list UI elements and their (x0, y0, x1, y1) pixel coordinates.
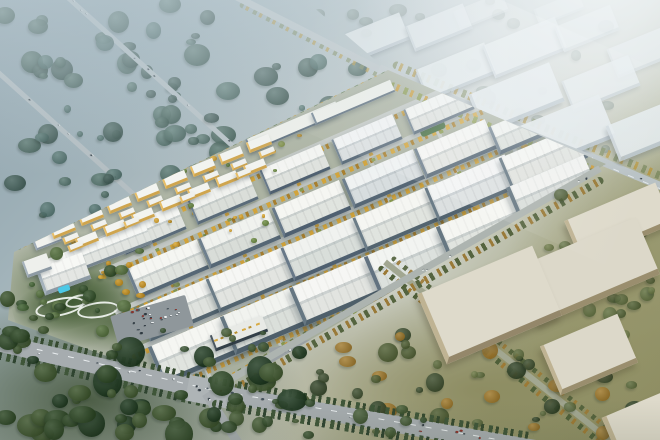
swimming-pool (57, 284, 70, 294)
vehicles (205, 393, 245, 440)
tree-clump (401, 340, 410, 348)
tree-clump (199, 408, 220, 429)
warehouse-building (126, 239, 209, 299)
apartment-building (202, 170, 219, 182)
bottom-shade (0, 400, 660, 440)
distant-warehouses (0, 0, 660, 440)
tree-clump (303, 431, 314, 439)
tree-clump (160, 165, 181, 183)
tree-clump (79, 285, 88, 294)
vehicle-dot (326, 352, 329, 354)
street-trees (151, 209, 575, 397)
tree-clump (316, 369, 324, 375)
tree-clump (208, 166, 215, 173)
tree-clump (168, 95, 178, 103)
tree-clump (16, 300, 27, 307)
tree-clump (69, 406, 96, 423)
lawn (0, 233, 145, 348)
tree-clump (160, 328, 167, 333)
apartment-building (179, 191, 196, 203)
tree-clump (438, 138, 445, 143)
tree-clump (564, 337, 581, 352)
apartment-building (106, 195, 132, 214)
tree-clump (431, 63, 447, 78)
street-trees (116, 115, 577, 319)
tree-clump (415, 13, 426, 20)
side-road (202, 391, 249, 440)
large-warehouse (516, 217, 660, 325)
tree-clump (593, 171, 599, 176)
tree-clump (353, 114, 363, 124)
tree-clump (117, 300, 131, 312)
vehicle-dot (311, 356, 314, 358)
tree-clump (530, 208, 536, 212)
tree-clump (52, 301, 63, 312)
tree-clump (40, 202, 55, 217)
tree-clump (39, 73, 48, 79)
tree-clump (21, 51, 44, 73)
tree-clump (168, 220, 172, 223)
tree-clump (377, 403, 397, 420)
vehicle-dot (128, 371, 131, 373)
vehicle-dot (317, 358, 319, 359)
tree-clump (319, 205, 324, 209)
tree-clump (396, 405, 409, 414)
distant-warehouse (405, 3, 473, 51)
tree-clump (571, 50, 581, 60)
vehicle-dot (220, 390, 223, 392)
tree-clump (10, 329, 30, 343)
tree-clump (516, 336, 520, 339)
tree-clump (44, 410, 70, 429)
tree-clump (484, 390, 500, 403)
tree-clump (401, 346, 417, 360)
tree-clump (389, 4, 407, 17)
tree-clump (191, 33, 200, 39)
tree-clump (266, 87, 289, 105)
tree-clump (308, 166, 325, 183)
distant-warehouse (533, 0, 584, 26)
sports-field (418, 116, 447, 137)
apartment-building (78, 207, 104, 226)
apartment-building (174, 182, 191, 194)
vehicle-dot (137, 329, 140, 331)
tree-clump (174, 390, 188, 400)
tree-clump (262, 220, 269, 226)
tree-clump (521, 144, 528, 149)
tree-clump (173, 282, 180, 287)
tree-clump (184, 44, 210, 66)
street (364, 149, 447, 332)
tree-clump (0, 291, 15, 306)
tree-clump (212, 158, 220, 165)
tree-clump (169, 417, 185, 429)
tree-clump (72, 396, 81, 404)
vehicle-dot (81, 9, 83, 11)
vehicles (389, 72, 660, 190)
tree-clump (601, 101, 615, 109)
vehicle-dot (142, 315, 145, 317)
tree-clump (471, 371, 478, 378)
tree-clump (395, 332, 405, 341)
tree-clump (307, 403, 317, 413)
tree-clump (31, 409, 51, 426)
tree-clump (627, 301, 642, 311)
apartment-building (162, 170, 188, 189)
vehicle-dot (153, 75, 155, 77)
far-forest (0, 0, 660, 440)
tree-clump (352, 388, 363, 400)
intersection (185, 375, 235, 409)
tree-clump (228, 393, 243, 405)
tree-clump (38, 326, 49, 334)
street-trees (101, 79, 552, 279)
tree-clump (165, 196, 177, 204)
tree-clump (120, 399, 137, 416)
tree-clump (513, 108, 525, 116)
tree-clump (372, 429, 380, 435)
apartment-building (146, 195, 163, 207)
tree-clump (103, 122, 124, 142)
tree-clump (615, 294, 628, 304)
apartment-building (134, 183, 160, 202)
tree-clump (616, 309, 626, 318)
apartment-building (190, 158, 216, 177)
vehicle-dot (25, 343, 28, 345)
tree-clump (347, 9, 360, 20)
tree-clump (122, 51, 140, 68)
tree-clump (165, 420, 194, 440)
tree-clump (159, 0, 181, 13)
tree-clump (131, 399, 150, 412)
vehicle-dot (422, 269, 425, 271)
tree-clump (583, 303, 596, 316)
vehicle-dot (12, 342, 15, 344)
vehicle-dot (170, 315, 173, 317)
tree-clump (101, 271, 106, 274)
warehouse-building (148, 310, 252, 385)
hotel-lawn (7, 261, 136, 342)
tree-clump (492, 103, 496, 106)
tree-clump (401, 90, 408, 96)
tree-clump (260, 331, 265, 335)
apartment-building (243, 158, 267, 176)
tree-clump (107, 267, 113, 273)
tree-clump (273, 169, 277, 172)
tree-clump (319, 96, 340, 114)
tree-clump (135, 248, 145, 254)
tree-clump (586, 327, 605, 346)
vehicles (61, 0, 235, 147)
tree-clump (183, 169, 187, 173)
tree-clump (596, 426, 610, 440)
tree-clump (299, 105, 305, 110)
tree-clump (471, 150, 485, 163)
tree-clump (371, 320, 376, 325)
tree-clump (275, 401, 287, 409)
tree-clump (39, 212, 47, 218)
tree-clump (292, 346, 307, 360)
tree-clump (239, 215, 243, 218)
roadside-trees (207, 376, 533, 440)
tree-clump (55, 57, 66, 68)
vehicle-dot (315, 354, 317, 355)
warehouse-building (352, 184, 446, 251)
tree-clump (126, 262, 132, 268)
tree-clump (204, 113, 219, 123)
lawn (45, 290, 215, 354)
tree-clump (62, 414, 80, 428)
vehicle-dot (578, 180, 581, 182)
terrain-gradient (0, 0, 660, 440)
tree-clump (559, 241, 571, 251)
tree-clump (117, 416, 136, 435)
apartment-building (230, 158, 247, 170)
vehicle-dot (412, 82, 415, 84)
tree-clump (95, 32, 112, 44)
tree-clump (13, 345, 22, 354)
tree-clump (153, 106, 171, 123)
tree-clump (146, 90, 156, 99)
vehicle-dot (410, 83, 413, 85)
warehouse-building (499, 126, 589, 190)
warehouse-building (424, 154, 518, 221)
boundary-avenue (207, 165, 601, 394)
tree-clump (534, 290, 546, 298)
tree-clump (0, 7, 15, 24)
tree-clump (363, 199, 373, 207)
tree-clump (217, 178, 222, 181)
tree-clump (277, 184, 284, 190)
tree-clump (248, 344, 256, 353)
vehicle-dot (206, 387, 209, 389)
tree-clump (252, 417, 267, 432)
tree-clump (596, 371, 613, 383)
distant-warehouse (336, 12, 410, 64)
tree-clump (31, 426, 54, 440)
tree-clump (512, 310, 517, 315)
vehicle-dot (173, 378, 176, 380)
landscape-pond-path (76, 299, 120, 321)
street (504, 129, 571, 277)
dark-lowland (0, 285, 310, 440)
hotel-building (36, 252, 92, 295)
apartment-building (67, 240, 84, 252)
tree-clump (595, 387, 610, 402)
tree-clump (298, 58, 318, 77)
lane-markings (0, 338, 214, 391)
tree-clump (640, 287, 654, 301)
landscape-pond-path (34, 293, 87, 321)
tree-clump (626, 381, 638, 389)
tree-clump (358, 19, 377, 39)
tree-clump (352, 304, 358, 309)
tree-clump (71, 239, 77, 245)
tree-clump (188, 137, 198, 146)
tree-clump (483, 91, 496, 104)
tree-clump (210, 421, 221, 432)
tree-clump (364, 28, 378, 39)
vehicle-dot (276, 397, 279, 399)
tree-clump (625, 401, 644, 417)
roadside-trees (0, 326, 213, 384)
tree-clump (339, 356, 356, 367)
tree-clump (297, 134, 302, 137)
tree-clump (247, 356, 274, 385)
vehicle-dot (640, 177, 643, 179)
vehicle-dot (133, 322, 135, 323)
vehicle-dot (151, 322, 154, 324)
street-trees (296, 181, 369, 343)
street (220, 209, 291, 365)
vehicle-dot (209, 398, 212, 401)
apartment-building (159, 194, 183, 212)
tree-clump (216, 82, 240, 100)
tree-clump (249, 373, 276, 391)
tree-clump (453, 324, 469, 339)
tree-clump (97, 135, 104, 141)
apartment-building (62, 232, 79, 244)
vehicle-dot (161, 319, 163, 320)
tree-clump (516, 356, 523, 360)
tree-clump (40, 299, 48, 305)
vehicle-dot (176, 314, 178, 315)
tree-clump (155, 117, 169, 128)
lawn (435, 207, 565, 293)
vehicle-dot (198, 389, 201, 391)
tree-clump (475, 372, 484, 379)
tree-clump (544, 399, 559, 413)
tree-clump (29, 315, 39, 321)
tree-clump (372, 371, 388, 381)
tree-clump (172, 176, 178, 182)
vehicle-dot (147, 307, 150, 309)
parking-lot (269, 336, 332, 368)
tree-clump (171, 92, 180, 100)
tree-clump (448, 166, 459, 175)
tree-clump (355, 132, 368, 143)
tree-clump (269, 149, 276, 154)
field-avenue (383, 260, 616, 440)
tree-clump (38, 55, 53, 69)
tree-clump (528, 423, 540, 431)
apartment-building (235, 167, 252, 179)
tree-clump (303, 289, 307, 293)
tree-clump (108, 11, 129, 33)
street (149, 200, 582, 392)
tree-clump (97, 365, 116, 382)
tree-clump (18, 138, 41, 153)
tree-clump (466, 59, 481, 71)
tree-clump (216, 166, 225, 174)
street (69, 50, 530, 254)
tree-clump (209, 141, 234, 164)
tree-clump (132, 413, 147, 428)
tree-clump (364, 159, 377, 173)
vehicle-dot (178, 312, 180, 313)
tree-clump (106, 261, 111, 266)
tree-clump (482, 342, 498, 359)
tree-clump (334, 251, 337, 254)
tree-clump (324, 146, 343, 163)
tree-clump (107, 389, 116, 398)
tree-clump (117, 53, 138, 74)
tree-clump (49, 168, 52, 171)
tree-clump (308, 277, 315, 283)
tree-clump (77, 131, 83, 137)
tree-clump (395, 328, 411, 342)
tree-clump (151, 306, 161, 313)
tree-clump (540, 411, 545, 416)
tree-clump (337, 125, 349, 135)
tree-clump (52, 151, 66, 164)
warehouse-building (289, 249, 399, 327)
tree-clump (416, 387, 423, 392)
tree-clump (196, 134, 211, 144)
tree-clump (192, 211, 196, 214)
vehicle-dot (290, 408, 293, 410)
tree-clump (254, 167, 260, 171)
haze-veil (0, 0, 340, 170)
tree-clump (89, 204, 102, 215)
tree-clump (359, 170, 367, 175)
tree-clump (610, 297, 616, 302)
olive-field-east (505, 165, 660, 435)
tree-clump (82, 299, 89, 304)
tree-clump (211, 126, 236, 143)
warehouse-building (342, 149, 425, 209)
tree-clump (646, 277, 655, 284)
vehicles (0, 61, 133, 194)
tree-clump (554, 189, 568, 202)
vehicle-dot (196, 385, 199, 387)
tree-clump (635, 224, 648, 238)
tree-clump (185, 124, 197, 134)
tree-clump (603, 307, 617, 321)
vehicles (0, 335, 215, 396)
tree-clump (115, 337, 144, 367)
warehouse-building (259, 144, 330, 195)
tree-clump (71, 411, 83, 423)
tree-clump (272, 399, 279, 404)
warehouse-building (280, 214, 374, 281)
apartment-building (118, 207, 135, 219)
workshop-strip (245, 101, 341, 152)
tree-clump (35, 133, 48, 143)
distant-warehouse (561, 55, 640, 113)
tree-clump (488, 333, 497, 340)
tree-clump (115, 414, 127, 423)
vehicle-dot (150, 317, 152, 318)
tree-clump (400, 416, 412, 427)
tree-clump (618, 273, 625, 278)
vehicle-dot (131, 311, 134, 313)
tree-clump (115, 279, 123, 285)
tree-clump (94, 212, 104, 219)
vehicle-dot (576, 152, 579, 154)
tree-clump (317, 75, 335, 89)
tree-clump (200, 10, 215, 25)
tree-clump (173, 242, 179, 247)
tree-clump (340, 0, 365, 20)
distant-warehouse (606, 98, 660, 161)
tree-clump (210, 156, 217, 161)
tree-clump (305, 399, 315, 407)
lane-markings (205, 388, 536, 440)
tree-clump (210, 371, 234, 396)
tree-clump (187, 165, 201, 175)
tree-clump (343, 151, 348, 155)
